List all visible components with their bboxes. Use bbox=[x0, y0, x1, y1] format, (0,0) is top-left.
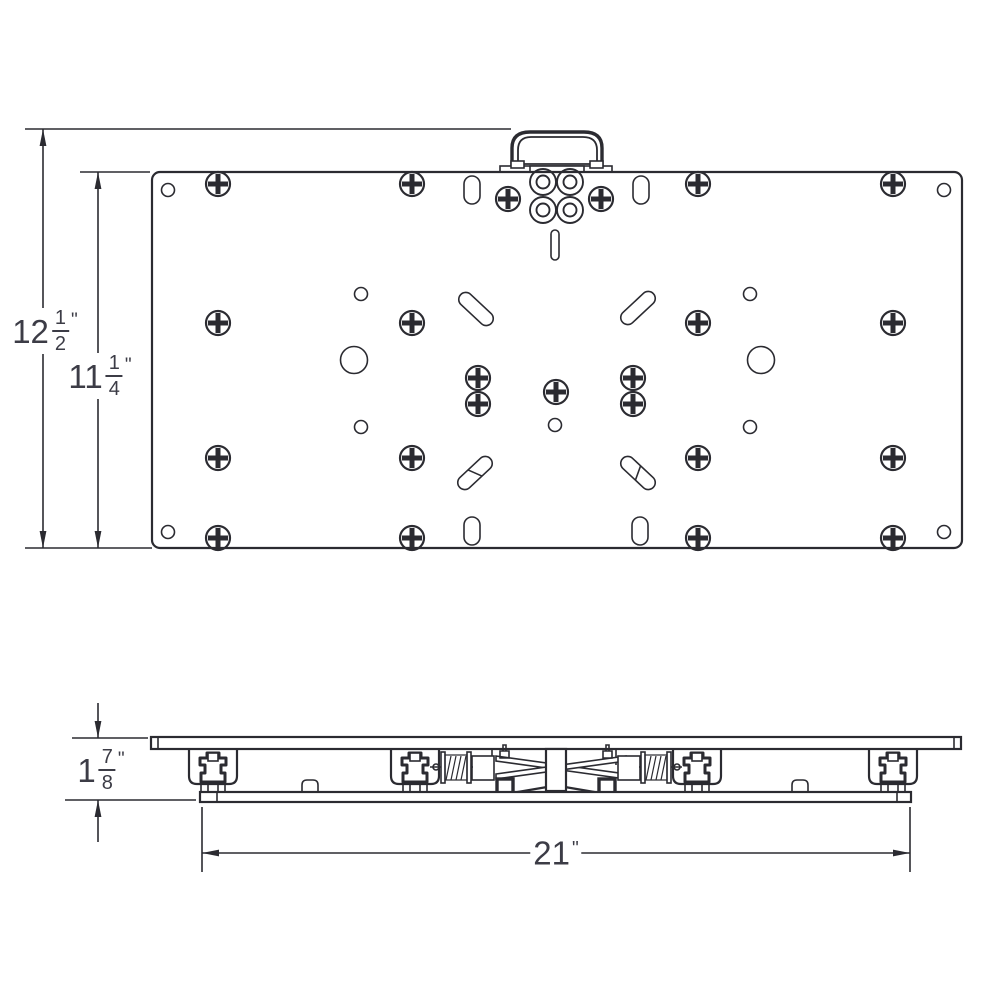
phillips-screw bbox=[589, 187, 613, 211]
coil-spring-right bbox=[639, 752, 682, 783]
clamp-leg bbox=[685, 784, 692, 792]
phillips-screw bbox=[621, 392, 645, 416]
clamp-leg bbox=[420, 784, 427, 792]
phillips-screw bbox=[881, 311, 905, 335]
arrowhead-down bbox=[95, 531, 102, 548]
dim-label-overall-width: 21 " bbox=[530, 837, 581, 870]
spring-coil-hatch bbox=[446, 756, 466, 780]
phillips-screw bbox=[206, 526, 230, 550]
side-view bbox=[65, 703, 961, 872]
dim-fraction: 1 2 bbox=[52, 308, 69, 354]
phillips-screw bbox=[206, 172, 230, 196]
phillips-screw bbox=[881, 172, 905, 196]
phillips-screw bbox=[881, 526, 905, 550]
arrowhead-down bbox=[40, 531, 47, 548]
arrowhead-right bbox=[893, 850, 910, 857]
fraction-denominator: 8 bbox=[102, 771, 113, 793]
top-view bbox=[25, 129, 962, 550]
stop-bump bbox=[302, 780, 318, 792]
track-clamp bbox=[391, 749, 439, 792]
spring-washer bbox=[441, 752, 445, 783]
slider-notch bbox=[410, 753, 420, 761]
spring-coil-hatch bbox=[646, 756, 666, 780]
handle-inner bbox=[518, 137, 597, 164]
handle-foot-right bbox=[590, 161, 603, 168]
center-post bbox=[546, 749, 566, 791]
dim-whole: 11 bbox=[68, 360, 102, 393]
dim-unit: " bbox=[118, 750, 125, 769]
phillips-screw bbox=[544, 380, 568, 404]
dim-whole: 21 bbox=[533, 837, 570, 870]
arrowhead-up bbox=[95, 172, 102, 189]
slider-notch bbox=[692, 753, 702, 761]
dim-unit: " bbox=[71, 311, 78, 330]
phillips-screw bbox=[686, 311, 710, 335]
drawing-canvas bbox=[0, 0, 1000, 1000]
plate-outline bbox=[152, 172, 962, 548]
dim-label-overall-height: 12 1 2 " bbox=[9, 308, 81, 354]
stop-bump bbox=[792, 780, 808, 792]
fraction-numerator: 1 bbox=[52, 308, 69, 332]
slider-block-right bbox=[618, 756, 640, 780]
phillips-screw bbox=[466, 366, 490, 390]
track-clamp bbox=[673, 749, 721, 792]
clamp-leg bbox=[218, 784, 225, 792]
dim-unit: " bbox=[125, 356, 132, 375]
clamp-leg bbox=[201, 784, 208, 792]
phillips-screw bbox=[400, 311, 424, 335]
arrowhead-up bbox=[40, 129, 47, 146]
dim-label-side-thickness: 1 7 8 " bbox=[74, 747, 127, 793]
carry-handle bbox=[500, 132, 612, 172]
coil-spring-left bbox=[430, 752, 473, 783]
dim-whole: 12 bbox=[12, 315, 49, 348]
phillips-screw bbox=[686, 172, 710, 196]
phillips-screw bbox=[881, 446, 905, 470]
phillips-screw bbox=[400, 172, 424, 196]
track-clamp bbox=[189, 749, 237, 792]
handle-foot-left bbox=[511, 161, 524, 168]
side-top-plate bbox=[151, 737, 961, 749]
phillips-screw bbox=[400, 526, 424, 550]
fraction-numerator: 1 bbox=[106, 353, 123, 377]
slider-notch bbox=[208, 753, 218, 761]
phillips-screw bbox=[206, 311, 230, 335]
phillips-screw bbox=[400, 446, 424, 470]
dim-fraction: 7 8 bbox=[99, 747, 116, 793]
clamp-leg bbox=[403, 784, 410, 792]
fraction-numerator: 7 bbox=[99, 747, 116, 771]
fraction-denominator: 2 bbox=[55, 332, 66, 354]
phillips-screw bbox=[206, 446, 230, 470]
slider-block-left bbox=[472, 756, 494, 780]
slider-notch bbox=[888, 753, 898, 761]
dim-whole: 1 bbox=[77, 754, 95, 787]
phillips-screw bbox=[686, 526, 710, 550]
dim-unit: " bbox=[572, 840, 579, 859]
clamp-leg bbox=[702, 784, 709, 792]
phillips-screw bbox=[496, 187, 520, 211]
arrowhead-left bbox=[202, 850, 219, 857]
dimension-lines-side bbox=[65, 703, 910, 872]
spring-washer bbox=[467, 752, 471, 783]
track-clamp bbox=[869, 749, 917, 792]
clamp-leg bbox=[881, 784, 888, 792]
clamp-leg bbox=[898, 784, 905, 792]
phillips-screw bbox=[686, 446, 710, 470]
fraction-denominator: 4 bbox=[109, 377, 120, 399]
arrowhead-down bbox=[95, 721, 102, 738]
phillips-screw bbox=[466, 392, 490, 416]
dim-label-plate-height: 11 1 4 " bbox=[65, 353, 134, 399]
dim-fraction: 1 4 bbox=[106, 353, 123, 399]
side-bottom-bar bbox=[200, 792, 911, 802]
phillips-screw bbox=[621, 366, 645, 390]
arrowhead-up bbox=[95, 800, 102, 817]
